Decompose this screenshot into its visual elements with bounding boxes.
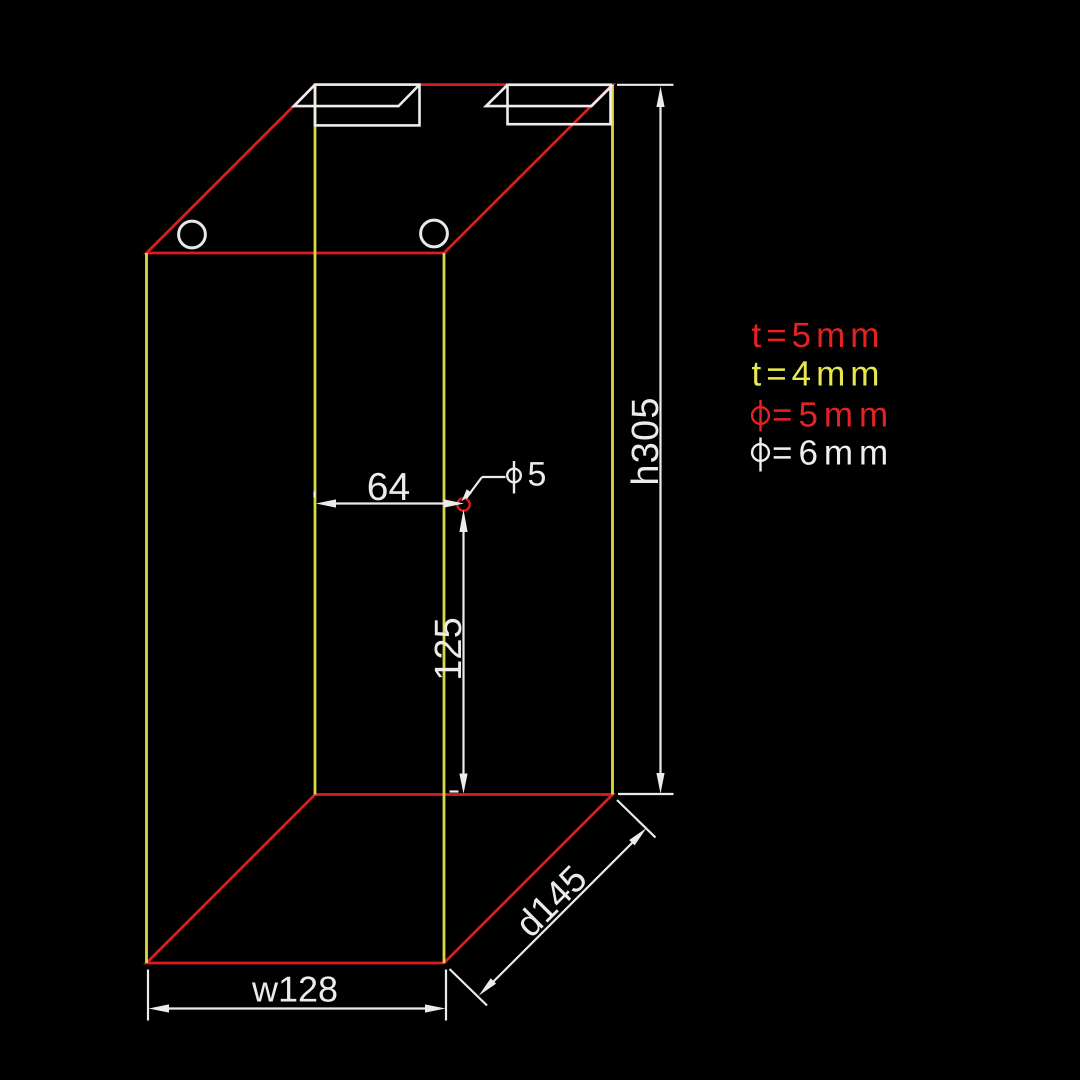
svg-text:5: 5: [528, 456, 547, 494]
svg-text:125: 125: [428, 617, 470, 680]
svg-text:h305: h305: [625, 396, 667, 485]
svg-text:t=4mm: t=4mm: [752, 355, 885, 394]
svg-text:64: 64: [367, 466, 410, 509]
svg-text:=5mm: =5mm: [772, 396, 894, 435]
svg-text:t=5mm: t=5mm: [752, 316, 885, 355]
svg-text:w128: w128: [251, 969, 338, 1010]
svg-text:=6mm: =6mm: [772, 434, 894, 473]
